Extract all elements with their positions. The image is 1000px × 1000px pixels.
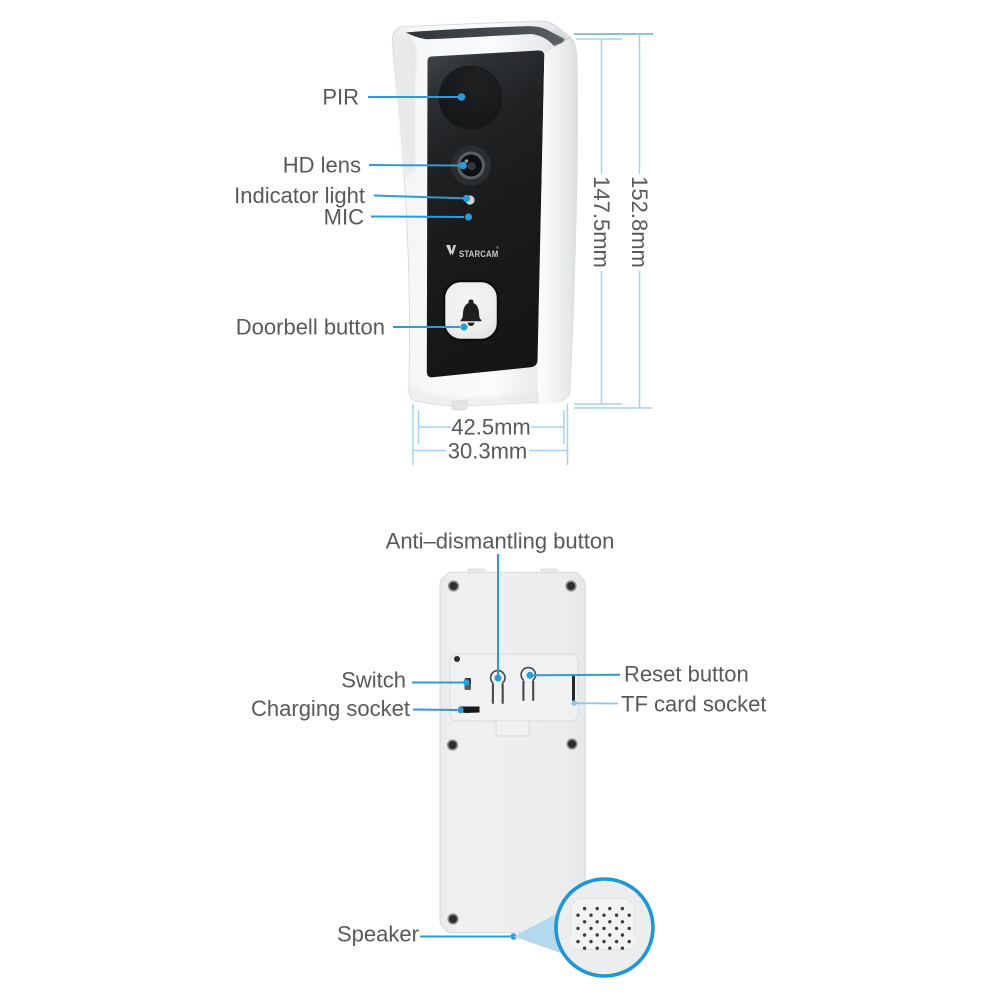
svg-text:Switch: Switch [341, 668, 406, 693]
svg-text:STARCAM: STARCAM [459, 248, 498, 259]
svg-text:152.8mm: 152.8mm [627, 176, 652, 268]
svg-text:MIC: MIC [324, 205, 364, 230]
svg-text:Charging socket: Charging socket [251, 696, 410, 721]
svg-text:Anti–dismantling button: Anti–dismantling button [386, 529, 615, 554]
svg-text:®: ® [496, 245, 499, 250]
svg-text:Reset button: Reset button [624, 662, 749, 687]
svg-text:Doorbell button: Doorbell button [236, 315, 385, 340]
svg-text:TF card socket: TF card socket [621, 692, 766, 717]
svg-text:30.3mm: 30.3mm [448, 439, 527, 464]
svg-text:147.5mm: 147.5mm [589, 176, 614, 268]
svg-text:PIR: PIR [322, 85, 359, 110]
svg-text:HD lens: HD lens [283, 153, 361, 178]
svg-text:Speaker: Speaker [337, 922, 419, 947]
svg-text:42.5mm: 42.5mm [451, 415, 530, 440]
